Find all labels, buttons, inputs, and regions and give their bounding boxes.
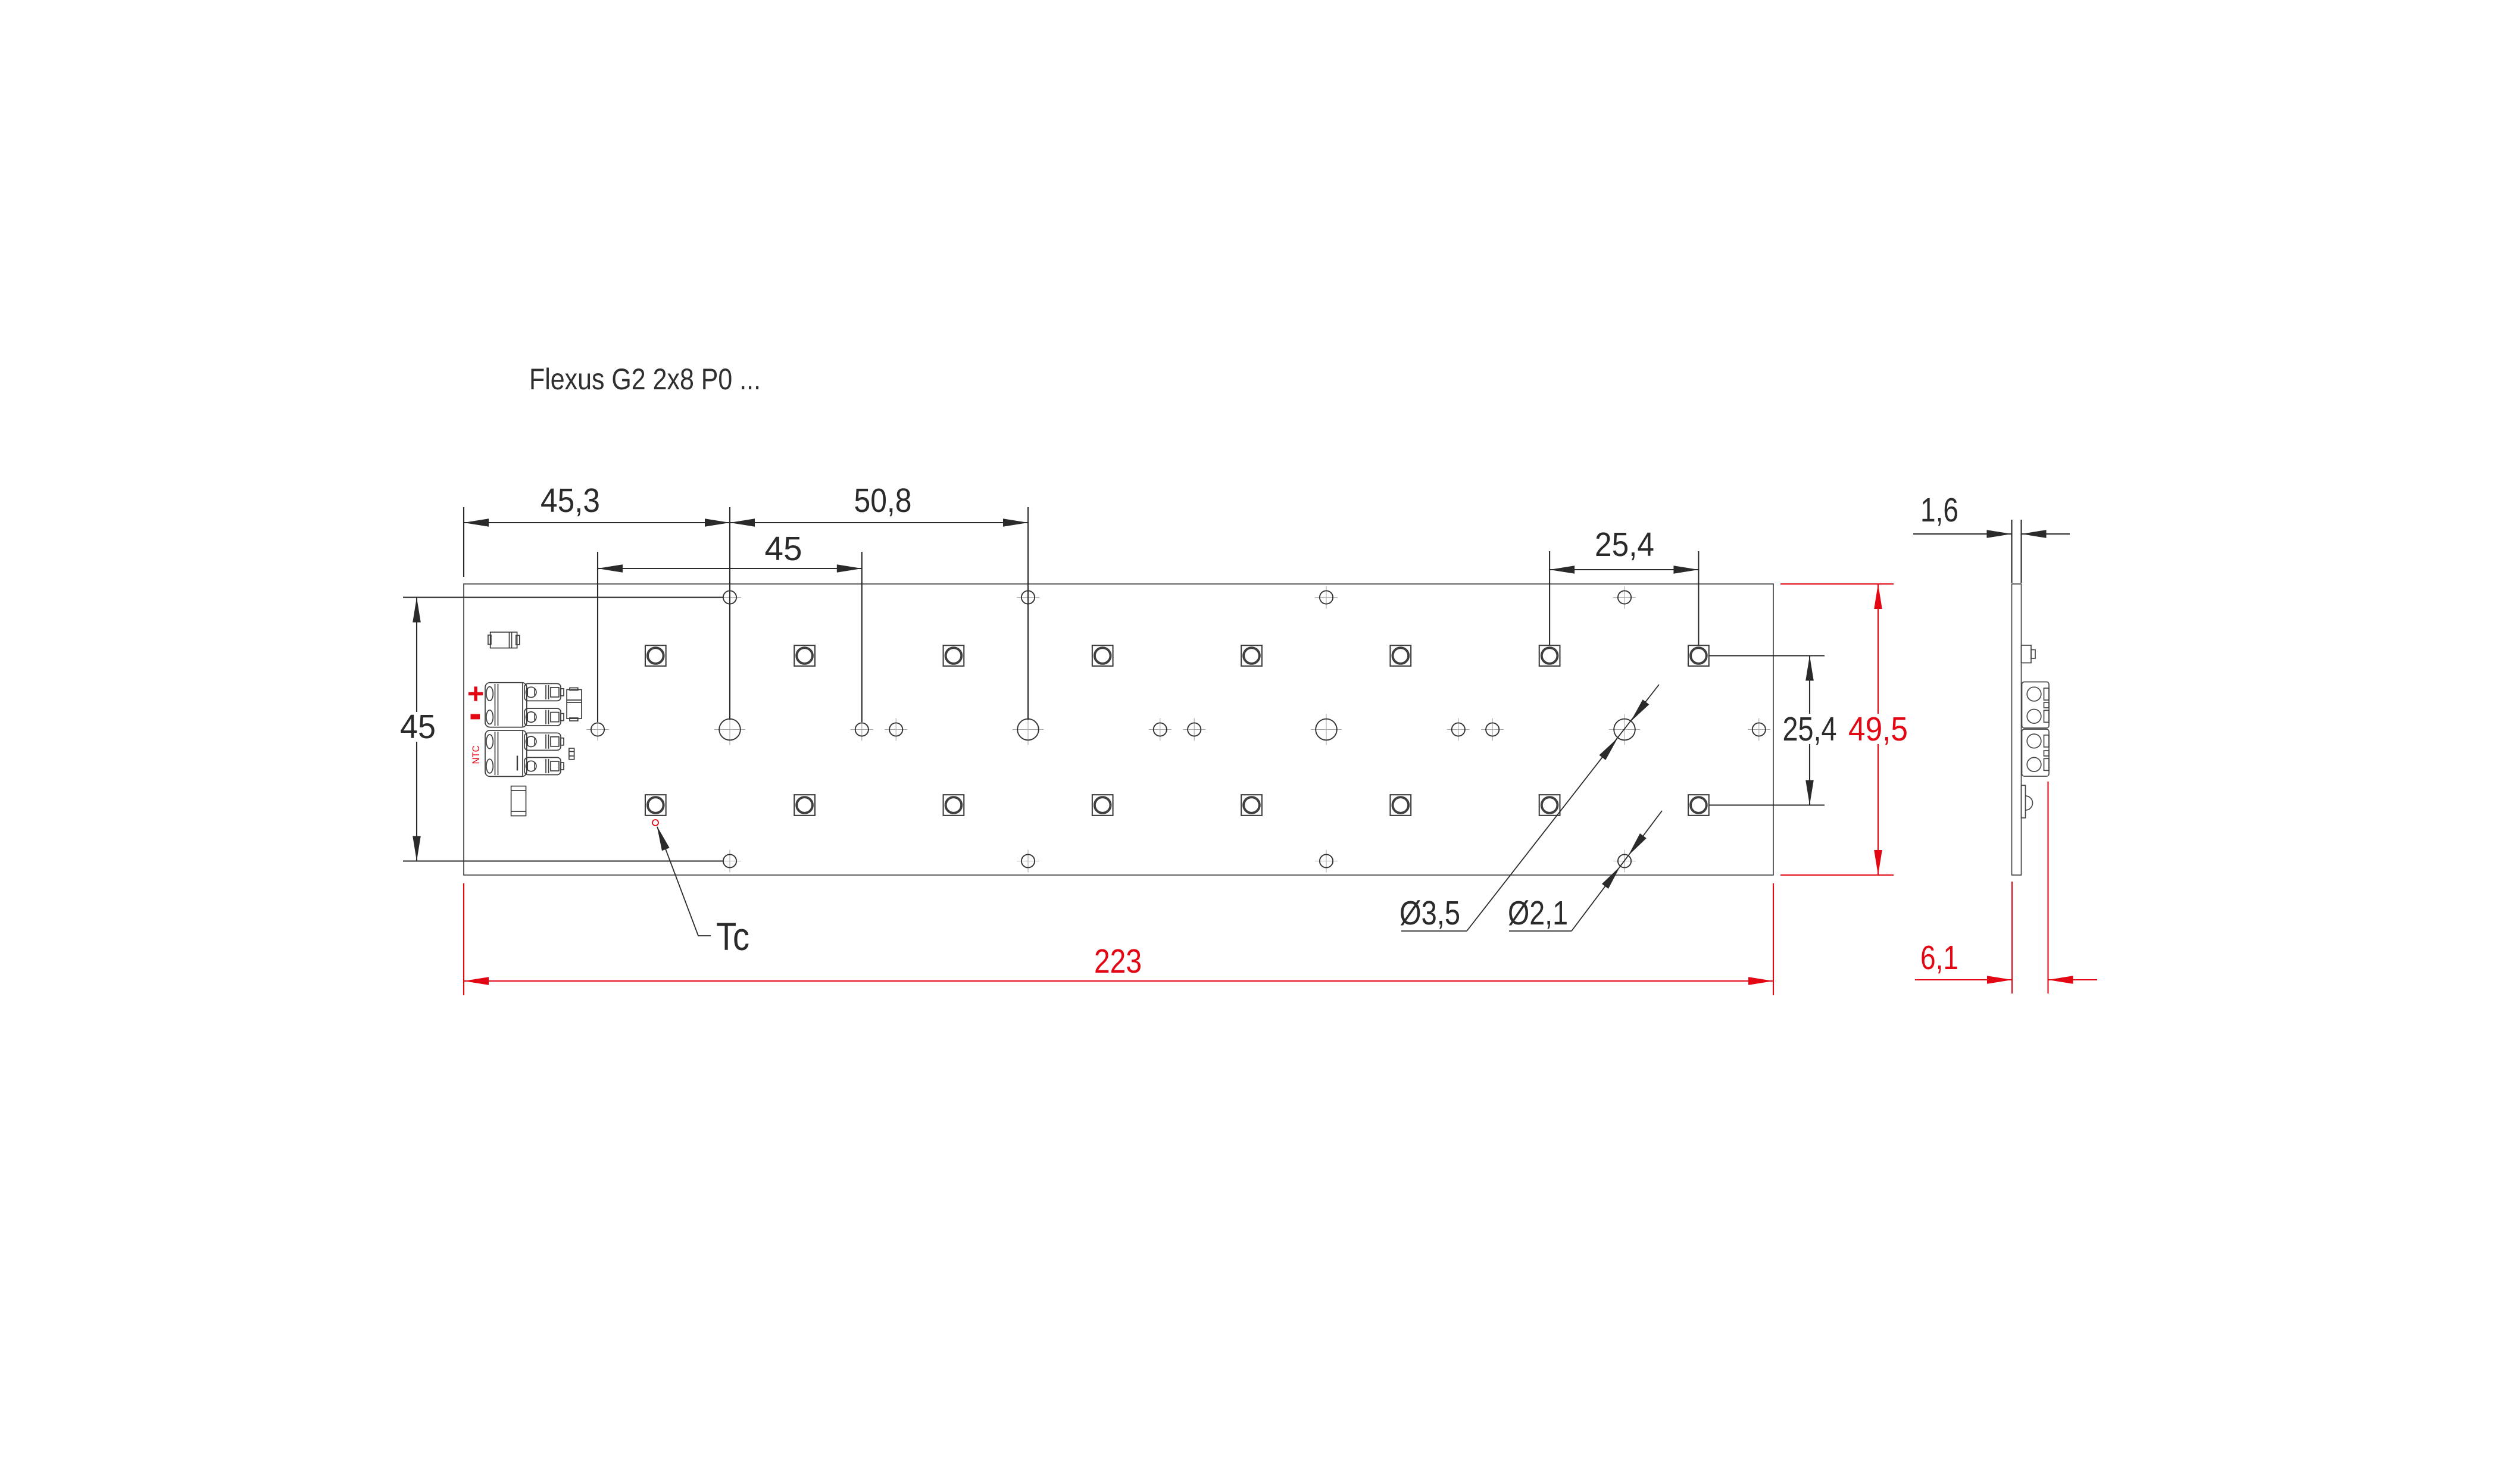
svg-text:Ø2,1: Ø2,1 (1508, 894, 1568, 932)
svg-text:Ø3,5: Ø3,5 (1399, 894, 1460, 932)
svg-text:NTC: NTC (470, 746, 482, 764)
svg-text:223: 223 (1094, 942, 1142, 980)
svg-text:25,4: 25,4 (1783, 710, 1837, 748)
svg-text:Flexus G2 2x8 P0 ...: Flexus G2 2x8 P0 ... (529, 363, 761, 396)
svg-text:45,3: 45,3 (541, 482, 600, 520)
svg-text:6,1: 6,1 (1920, 939, 1958, 977)
svg-text:25,4: 25,4 (1595, 526, 1654, 564)
svg-text:45: 45 (400, 708, 436, 746)
svg-text:Tc: Tc (716, 914, 749, 958)
svg-text:50,8: 50,8 (854, 482, 912, 520)
svg-text:49,5: 49,5 (1848, 710, 1908, 748)
svg-text:45: 45 (765, 530, 802, 568)
svg-text:1,6: 1,6 (1920, 491, 1958, 529)
